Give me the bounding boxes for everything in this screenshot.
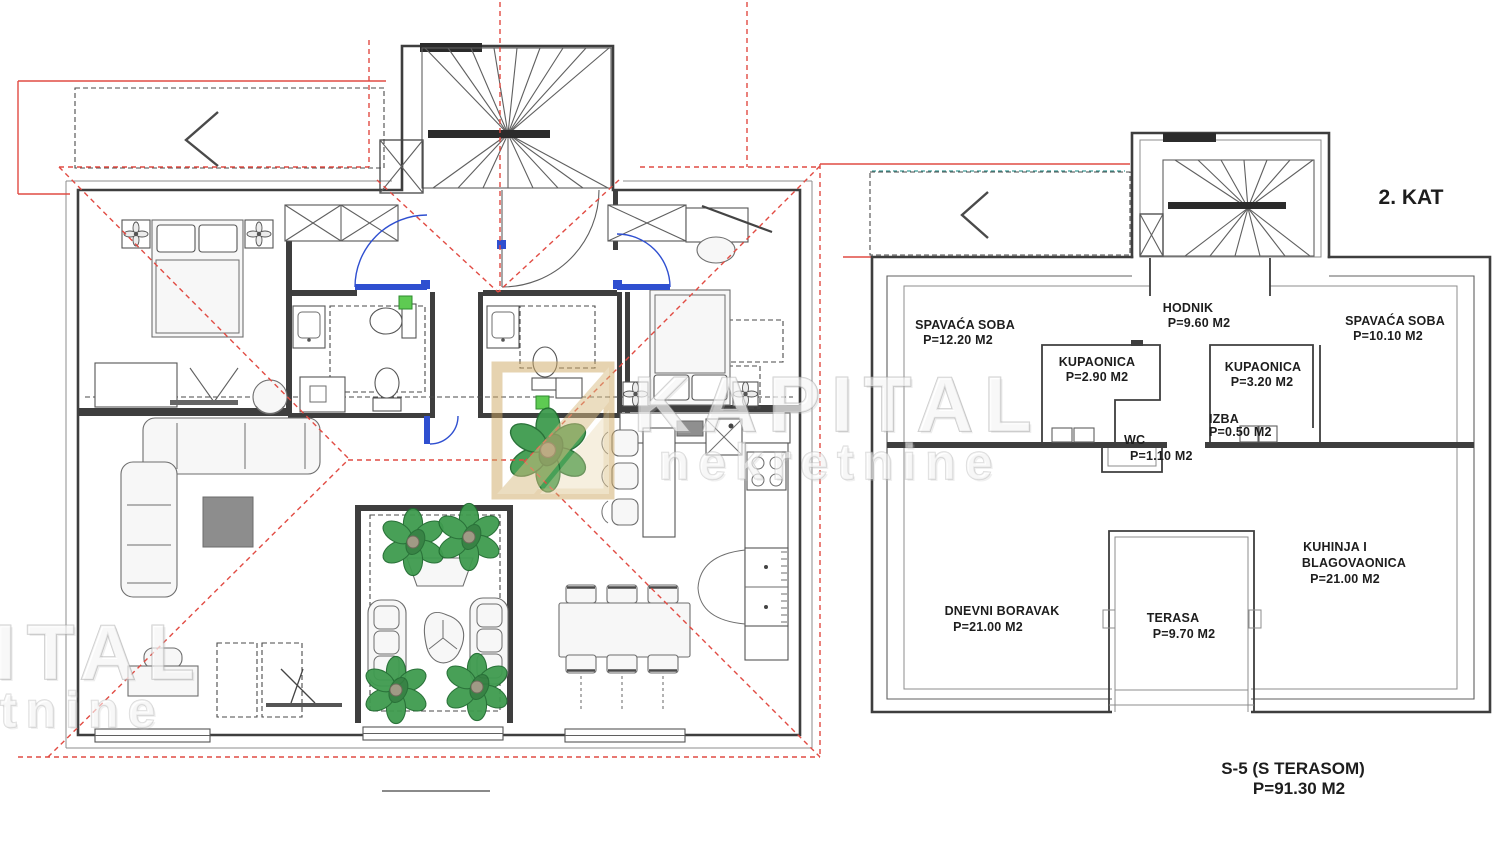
room-area-kupaonica-2: P=3.20 M2 [1231, 375, 1294, 389]
nightstand [245, 220, 273, 248]
watermark-subtitle-tile: nekretnine [0, 682, 164, 738]
right-arrow-icon [962, 192, 988, 238]
bathroom-b-fixtures [487, 306, 595, 409]
pantry-cabinet [698, 548, 788, 626]
shaft-x-box [1140, 214, 1163, 256]
triangle-table [424, 612, 463, 662]
floorplan-page: SPAVAĆA SOBA P=12.20 M2 HODNIK P=9.60 M2… [0, 0, 1500, 844]
sink [487, 306, 519, 348]
sink [293, 306, 325, 348]
room-area-hodnik: P=9.60 M2 [1168, 316, 1231, 330]
room-label-kuhinja-line2: BLAGOVAONICA [1302, 556, 1406, 570]
room-area-wc: P=1.10 M2 [1130, 449, 1193, 463]
room-area-dnevni-boravak: P=21.00 M2 [953, 620, 1023, 634]
room-label-terasa: TERASA [1147, 611, 1200, 625]
room-label-spavaca-soba-1: SPAVAĆA SOBA [915, 317, 1015, 332]
room-label-kupaonica-2: KUPAONICA [1225, 360, 1302, 374]
left-arrow-icon [186, 112, 218, 166]
room-label-dnevni-boravak: DNEVNI BORAVAK [945, 604, 1060, 618]
terrace-furniture [362, 503, 511, 723]
right-plan-stairs [1140, 133, 1321, 257]
bathroom-a-fixtures [293, 296, 425, 412]
door-hall [497, 190, 599, 287]
vent-box [536, 396, 549, 409]
desk [686, 206, 772, 263]
tv-bench [95, 363, 238, 407]
watermark-tile-left: KAPITAL KAPITAL nekretnine nekretnine [0, 608, 208, 740]
wardrobe [285, 205, 398, 241]
room-label-wc: WC [1124, 433, 1145, 447]
tv-set [266, 669, 342, 707]
dining-table-with-chairs [559, 585, 690, 712]
room-label-izba: IZBA [1209, 412, 1239, 426]
unit-summary-label: S-5 (S TERASOM) P=91.30 M2 [1221, 759, 1365, 798]
room-area-izba: P=0.50 M2 [1209, 425, 1272, 439]
unit-area: P=91.30 M2 [1253, 779, 1345, 798]
washbasin-cabinet [300, 377, 345, 412]
vent-box [399, 296, 412, 309]
bed-double [152, 220, 243, 337]
door-corridor [424, 416, 458, 444]
room-label-kupaonica-1: KUPAONICA [1059, 355, 1136, 369]
floor-label: 2. KAT [1379, 186, 1444, 209]
watermark-subtitle: nekretnine [659, 434, 1002, 490]
left-plan-stairs [380, 43, 611, 193]
unit-label: S-5 (S TERASOM) [1221, 759, 1365, 778]
room-area-spavaca-soba-2: P=10.10 M2 [1353, 329, 1423, 343]
room-label-hodnik: HODNIK [1163, 301, 1214, 315]
room-area-kuhinja: P=21.00 M2 [1310, 572, 1380, 586]
small-table [556, 378, 582, 398]
wardrobe [608, 205, 686, 241]
floorplan-canvas: SPAVAĆA SOBA P=12.20 M2 HODNIK P=9.60 M2… [0, 0, 1500, 844]
right-balcony-outline [870, 172, 1130, 255]
coffee-table [203, 497, 253, 547]
window [565, 729, 685, 742]
terrace-door [363, 727, 503, 740]
watermark-text: KAPITAL KAPITAL nekretnine nekretnine [633, 360, 1044, 492]
bidet [373, 368, 401, 411]
left-balcony-outline [75, 88, 384, 168]
room-area-kupaonica-1: P=2.90 M2 [1066, 370, 1129, 384]
room-label-spavaca-soba-2: SPAVAĆA SOBA [1345, 313, 1445, 328]
armchair-small [253, 380, 287, 414]
room-area-terasa: P=9.70 M2 [1153, 627, 1216, 641]
door-bedroom-2 [613, 234, 670, 290]
room-area-spavaca-soba-1: P=12.20 M2 [923, 333, 993, 347]
room-label-kuhinja-line1: KUHINJA I [1303, 540, 1367, 554]
bedroom-1-furniture [95, 205, 398, 414]
